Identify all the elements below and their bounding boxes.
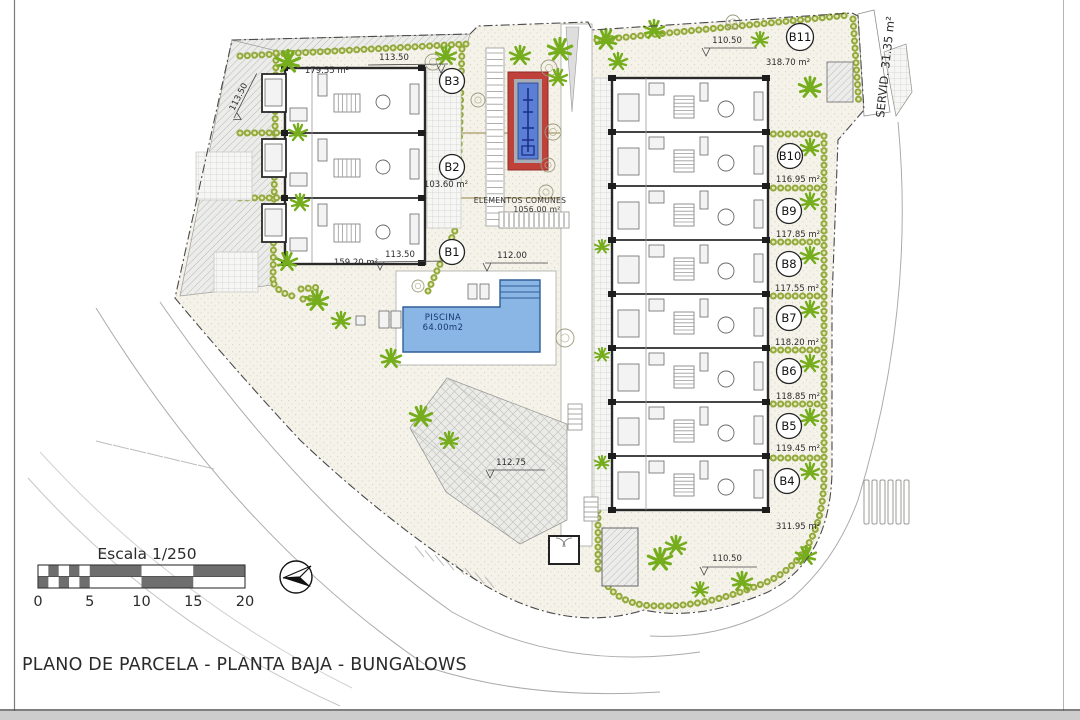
svg-text:113.50: 113.50 <box>379 53 409 63</box>
svg-text:110.50: 110.50 <box>712 36 742 46</box>
page-edge-strip <box>0 711 1080 720</box>
unit-label-b3: B3 <box>440 69 465 94</box>
svg-text:B7: B7 <box>781 311 796 325</box>
unit-area-b8: 117.55 m² <box>775 284 819 294</box>
scale-bar: Escala 1/250 0 5 10 15 20 <box>33 545 254 610</box>
svg-text:110.50: 110.50 <box>712 554 742 564</box>
svg-text:113.50: 113.50 <box>385 250 415 260</box>
unit-area-b11: 318.70 m² <box>766 58 810 68</box>
svg-text:B11: B11 <box>789 30 812 44</box>
pool-name: PISCINA <box>425 313 461 323</box>
common-element-monument <box>508 72 548 170</box>
svg-text:B6: B6 <box>781 364 796 378</box>
unit-label-b10: B10 <box>778 144 803 169</box>
west-terrace-patch-2 <box>214 252 258 292</box>
side-stairs-2 <box>584 497 598 521</box>
north-arrow-icon <box>280 561 312 593</box>
unit-area-b4: 311.95 m² <box>776 522 820 532</box>
scale-tick-15: 15 <box>184 594 202 610</box>
svg-text:B4: B4 <box>779 474 794 488</box>
unit-label-b5: B5 <box>777 414 802 439</box>
svg-text:B5: B5 <box>781 419 796 433</box>
scale-tick-10: 10 <box>132 594 150 610</box>
side-stairs-1 <box>568 404 582 430</box>
svg-text:112.00: 112.00 <box>497 251 527 261</box>
unit-area-b9: 117.85 m² <box>776 230 820 240</box>
trellis-structure <box>827 62 853 102</box>
unit-label-b4: B4 <box>775 469 800 494</box>
svg-text:112.75: 112.75 <box>496 458 526 468</box>
svg-text:B1: B1 <box>444 245 459 259</box>
crosswalk <box>864 480 909 524</box>
unit-area-b2: 103.60 m² <box>424 180 468 190</box>
unit-area-b5: 119.45 m² <box>776 444 820 454</box>
svg-text:B3: B3 <box>444 74 459 88</box>
plan-title: PLANO DE PARCELA - PLANTA BAJA - BUNGALO… <box>22 655 467 675</box>
unit-label-b1: B1 <box>440 240 465 265</box>
unit-area-b7: 118.20 m² <box>775 338 819 348</box>
unit-area-b1: 159.20 m² <box>334 258 378 268</box>
pergola <box>499 212 569 228</box>
utility-room <box>549 536 579 564</box>
unit-label-b11: B11 <box>787 24 814 51</box>
unit-label-b2: B2 <box>440 155 465 180</box>
site-plan-canvas: PISCINA 64.00m2 SERVID. 31.35 m² <box>0 0 1080 720</box>
left-building-block <box>262 65 425 266</box>
unit-area-b6: 118.85 m² <box>776 392 820 402</box>
unit-area-b3: 179.55 m² <box>305 66 349 76</box>
right-building-block <box>608 75 770 513</box>
svg-text:B2: B2 <box>444 160 459 174</box>
svg-text:B8: B8 <box>781 257 796 271</box>
svg-text:B10: B10 <box>779 149 802 163</box>
scale-tick-0: 0 <box>33 594 42 610</box>
scale-tick-20: 20 <box>236 594 254 610</box>
common-area-value: 1056.00 m² <box>513 205 560 214</box>
unit-area-b10: 116.95 m² <box>776 175 820 185</box>
unit-label-b8: B8 <box>777 252 802 277</box>
scale-tick-5: 5 <box>85 594 94 610</box>
left-building-terrace <box>427 70 461 228</box>
pool-area: 64.00m2 <box>423 323 464 333</box>
scale-label: Escala 1/250 <box>97 545 196 563</box>
garden-shed <box>602 528 638 586</box>
common-area-name: ELEMENTOS COMUNES <box>474 196 567 205</box>
svg-text:B9: B9 <box>781 204 796 218</box>
unit-label-b6: B6 <box>777 359 802 384</box>
west-terrace-patch-1 <box>196 152 252 200</box>
unit-label-b7: B7 <box>777 306 802 331</box>
unit-label-b9: B9 <box>777 199 802 224</box>
